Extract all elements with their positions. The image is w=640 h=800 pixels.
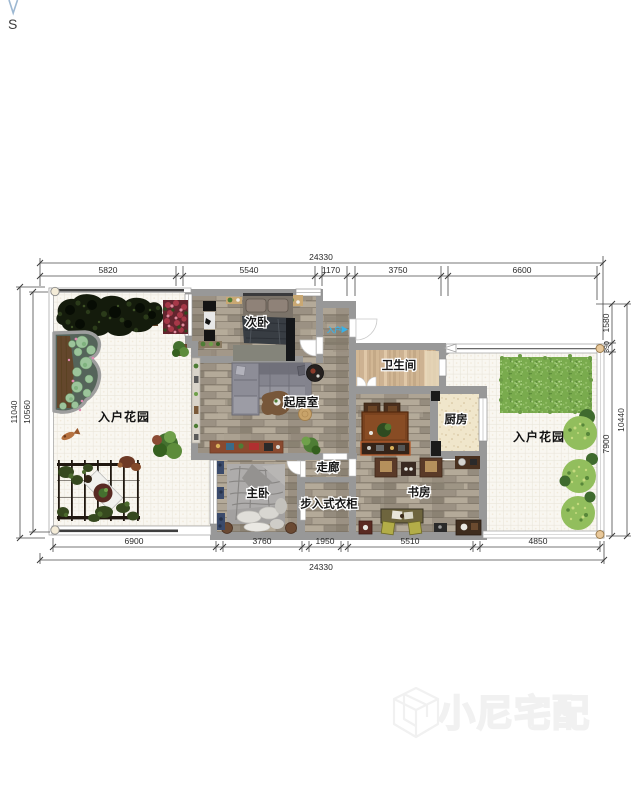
svg-text:6600: 6600 xyxy=(513,265,532,275)
svg-text:24330: 24330 xyxy=(309,562,333,572)
svg-text:走廊: 走廊 xyxy=(316,460,340,474)
svg-text:1170: 1170 xyxy=(322,265,341,275)
svg-text:厨房: 厨房 xyxy=(445,412,468,426)
svg-text:5540: 5540 xyxy=(240,265,259,275)
svg-text:7900: 7900 xyxy=(601,434,611,453)
svg-text:11040: 11040 xyxy=(9,400,19,423)
svg-text:1580: 1580 xyxy=(601,313,611,332)
svg-text:5820: 5820 xyxy=(99,265,118,275)
svg-text:书房: 书房 xyxy=(408,485,431,499)
svg-text:S: S xyxy=(8,16,17,32)
svg-text:步入式衣柜: 步入式衣柜 xyxy=(300,497,358,511)
svg-text:10440: 10440 xyxy=(616,408,626,432)
svg-text:6900: 6900 xyxy=(125,536,144,546)
svg-text:5510: 5510 xyxy=(401,536,420,546)
svg-text:起居室: 起居室 xyxy=(283,395,319,409)
svg-text:入户: 入户 xyxy=(326,326,341,335)
svg-text:4850: 4850 xyxy=(529,536,548,546)
svg-text:主卧: 主卧 xyxy=(247,486,270,500)
svg-text:1950: 1950 xyxy=(316,536,335,546)
svg-text:入户花园: 入户花园 xyxy=(98,409,150,424)
svg-text:3760: 3760 xyxy=(253,536,272,546)
svg-text:入户花园: 入户花园 xyxy=(513,429,565,444)
svg-text:小尼宅配: 小尼宅配 xyxy=(438,692,590,734)
svg-text:3750: 3750 xyxy=(389,265,408,275)
svg-text:390: 390 xyxy=(604,341,611,353)
svg-text:10560: 10560 xyxy=(22,400,32,424)
svg-text:24330: 24330 xyxy=(309,252,333,262)
svg-text:次卧: 次卧 xyxy=(246,315,269,329)
svg-text:卫生间: 卫生间 xyxy=(382,358,417,372)
